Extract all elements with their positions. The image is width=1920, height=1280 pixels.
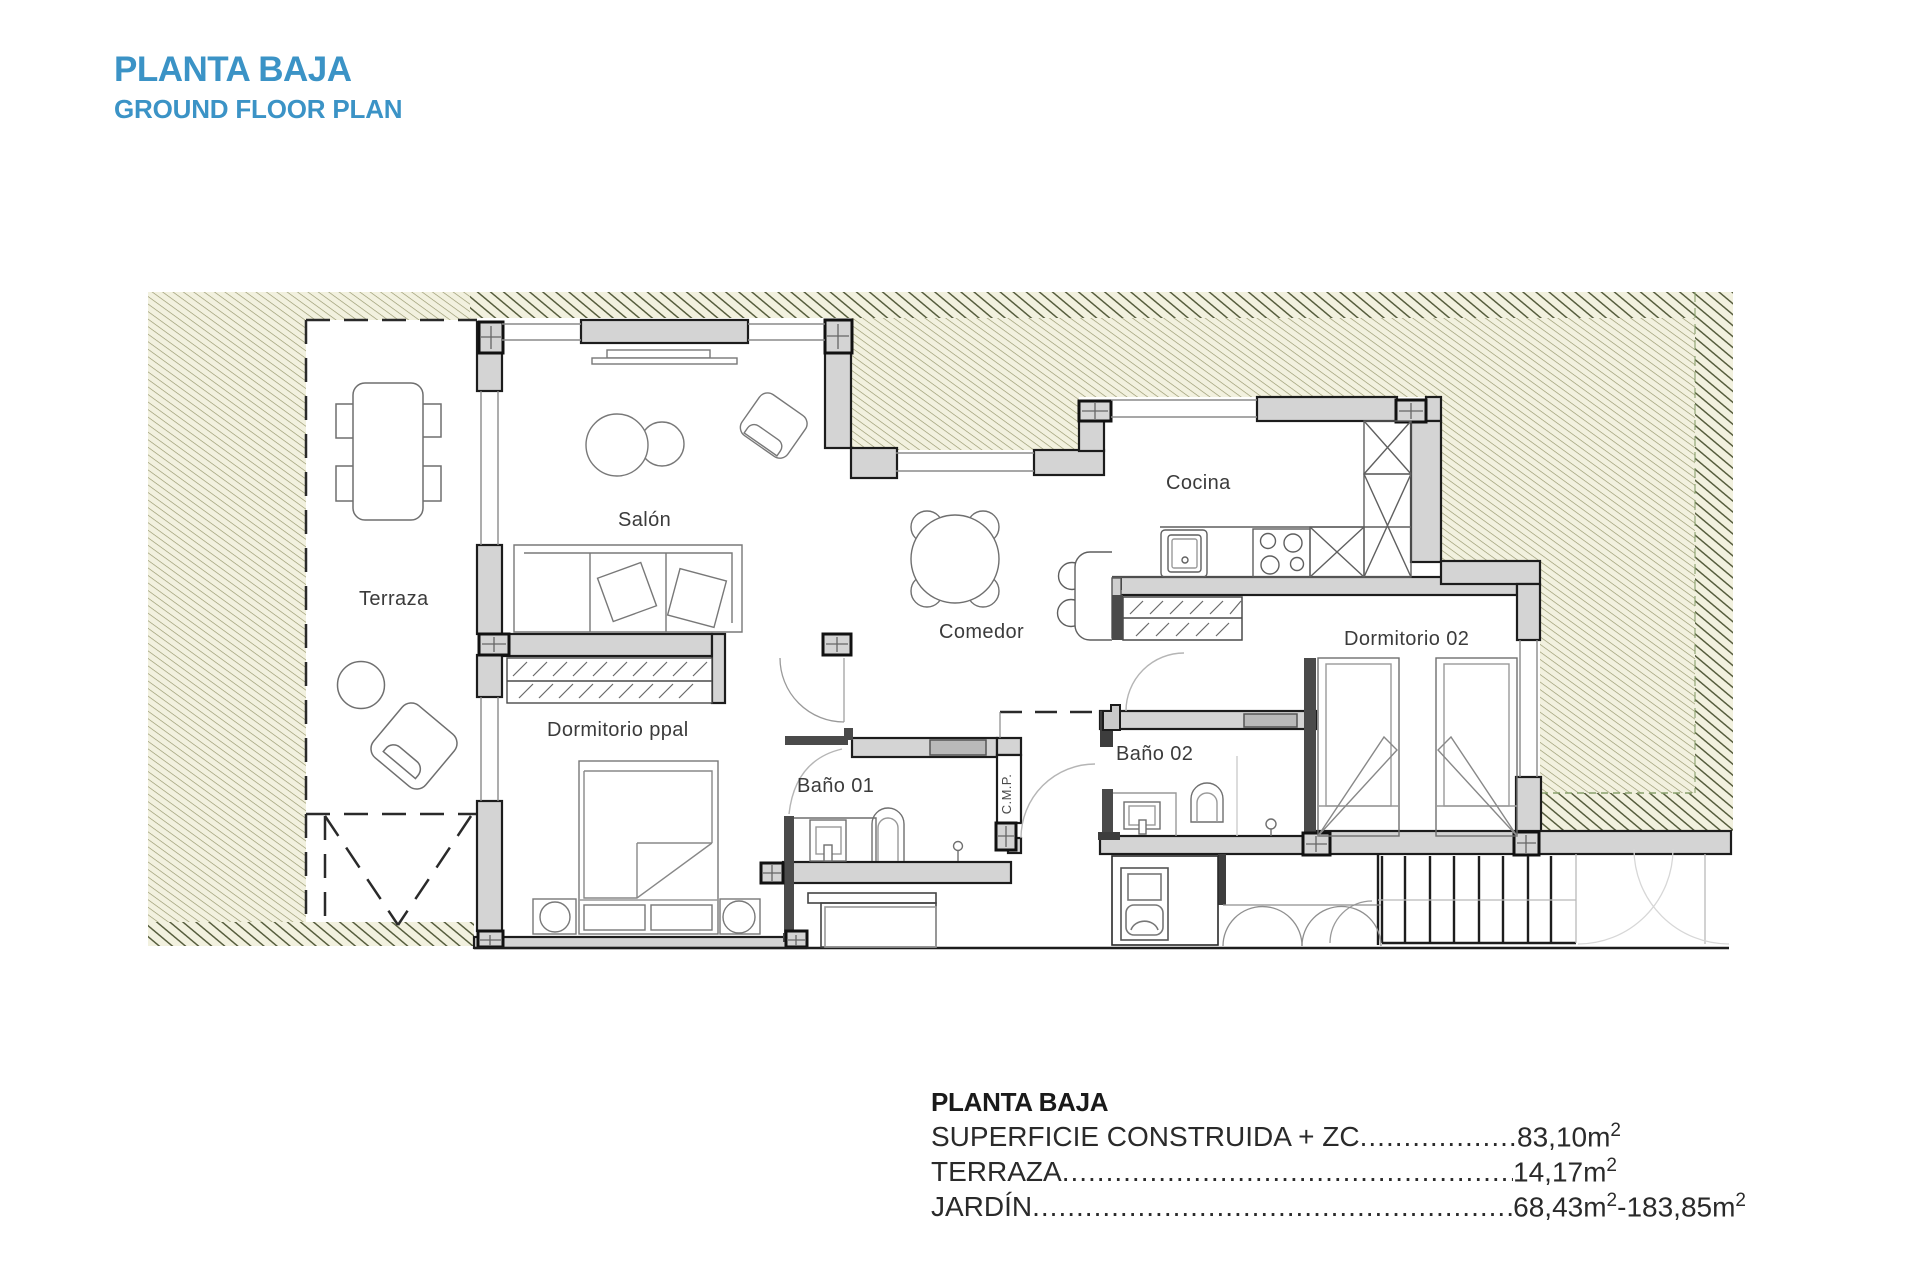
svg-text:C.M.P.: C.M.P. [999, 774, 1014, 814]
svg-text:Terraza: Terraza [359, 588, 429, 610]
svg-text:Dormitorio 02: Dormitorio 02 [1344, 628, 1469, 650]
svg-text:Baño 01: Baño 01 [797, 775, 874, 797]
svg-text:Salón: Salón [618, 509, 671, 531]
svg-text:Comedor: Comedor [939, 621, 1024, 643]
svg-text:Cocina: Cocina [1166, 472, 1231, 494]
svg-text:Dormitorio ppal: Dormitorio ppal [547, 719, 689, 741]
svg-text:Baño 02: Baño 02 [1116, 743, 1193, 765]
